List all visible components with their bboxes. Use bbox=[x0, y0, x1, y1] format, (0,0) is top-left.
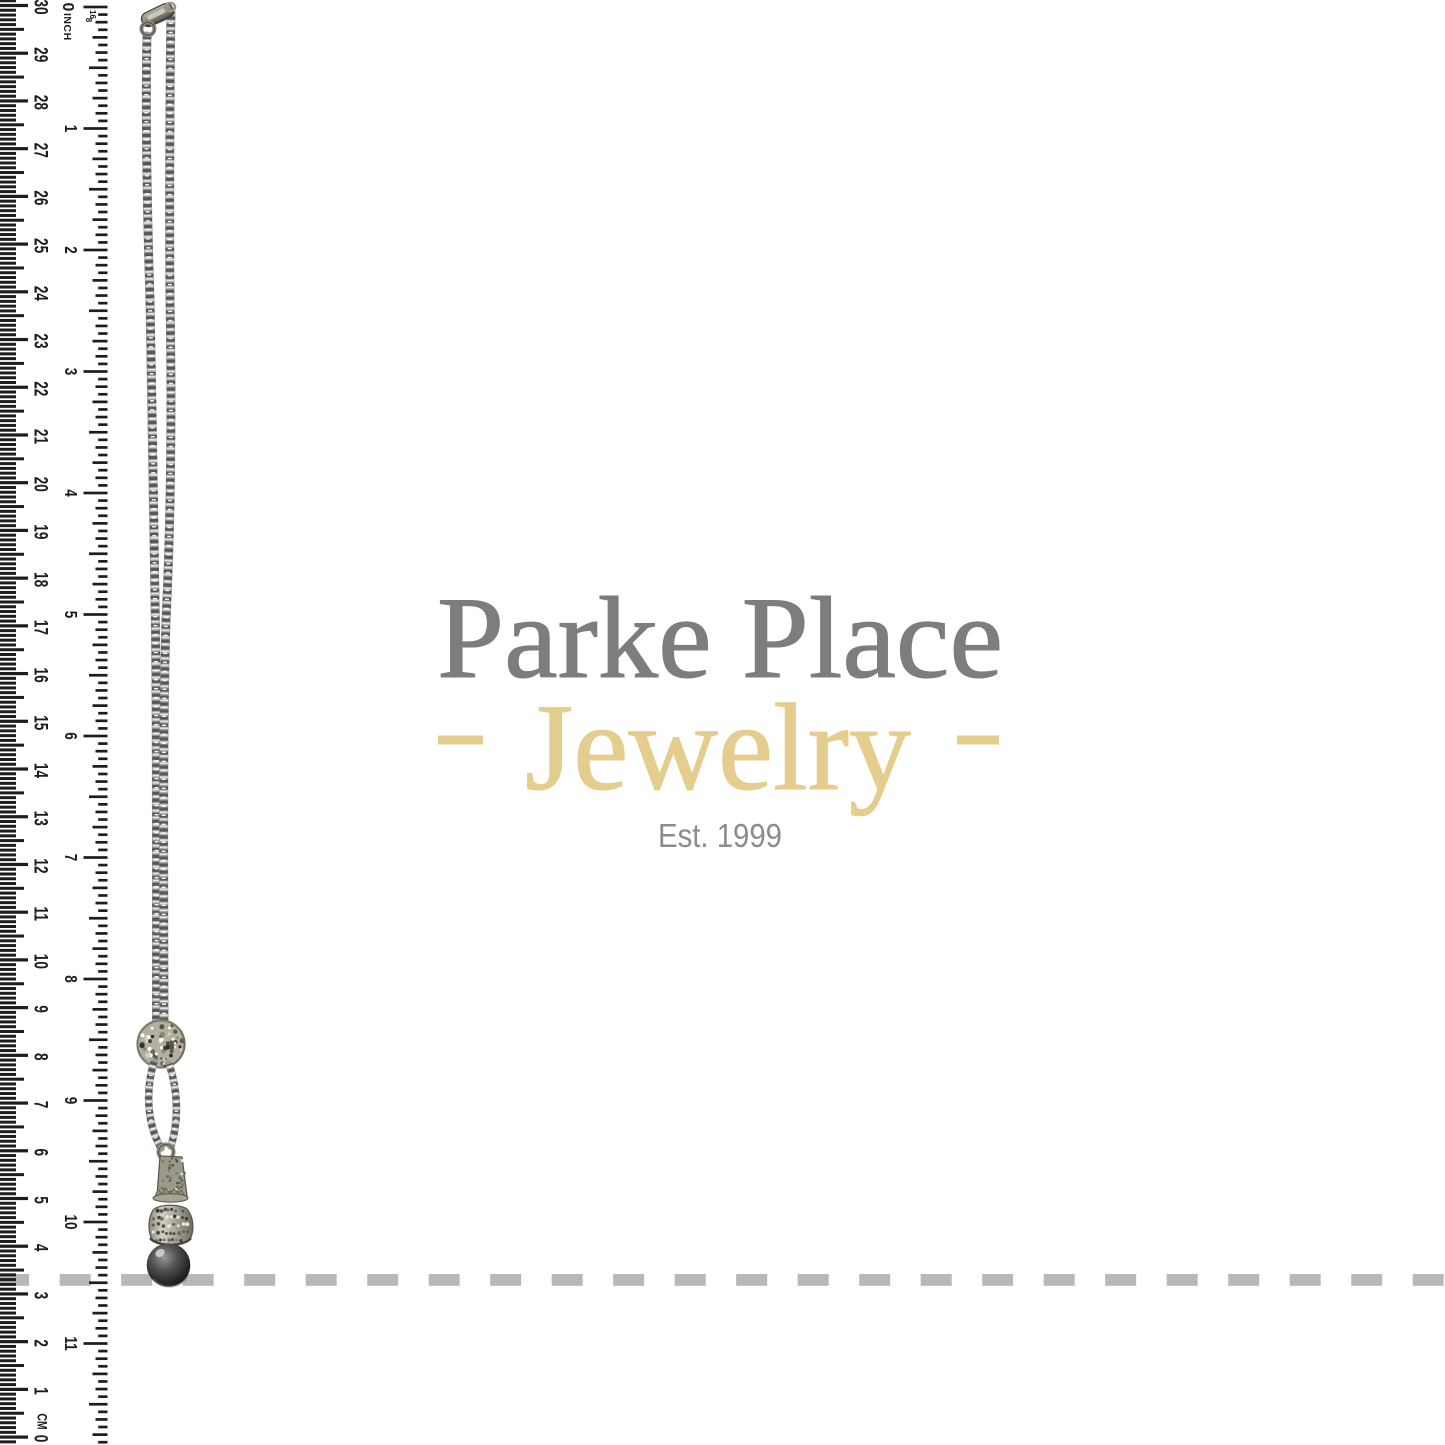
svg-text:22: 22 bbox=[30, 381, 52, 396]
svg-text:Jewelry: Jewelry bbox=[525, 679, 911, 816]
svg-text:4: 4 bbox=[60, 489, 79, 497]
svg-text:7: 7 bbox=[30, 1101, 52, 1109]
svg-text:10: 10 bbox=[30, 954, 52, 969]
svg-text:2: 2 bbox=[60, 246, 79, 254]
svg-text:17: 17 bbox=[30, 620, 52, 635]
svg-text:18: 18 bbox=[30, 572, 52, 587]
svg-text:5: 5 bbox=[60, 611, 79, 619]
svg-text:30: 30 bbox=[30, 0, 52, 15]
svg-text:19: 19 bbox=[30, 524, 52, 539]
svg-text:Est. 1999: Est. 1999 bbox=[658, 817, 782, 854]
svg-text:9: 9 bbox=[60, 1097, 79, 1105]
svg-text:7: 7 bbox=[60, 854, 79, 862]
svg-text:23: 23 bbox=[30, 333, 52, 348]
svg-text:1: 1 bbox=[60, 125, 79, 133]
svg-text:25: 25 bbox=[30, 238, 52, 253]
svg-text:28: 28 bbox=[30, 95, 52, 110]
svg-text:12: 12 bbox=[30, 858, 52, 873]
svg-text:14: 14 bbox=[30, 763, 52, 779]
svg-text:5: 5 bbox=[30, 1196, 52, 1204]
svg-text:8: 8 bbox=[60, 975, 79, 983]
svg-text:6: 6 bbox=[60, 732, 79, 740]
svg-text:16: 16 bbox=[30, 667, 52, 682]
svg-text:0: 0 bbox=[59, 3, 76, 12]
svg-text:10: 10 bbox=[60, 1214, 79, 1229]
svg-text:20: 20 bbox=[30, 477, 52, 492]
svg-text:27: 27 bbox=[30, 143, 52, 158]
svg-text:29: 29 bbox=[30, 47, 52, 62]
svg-text:3: 3 bbox=[60, 368, 79, 376]
svg-text:CM: CM bbox=[34, 1413, 50, 1429]
svg-text:15: 15 bbox=[30, 715, 52, 730]
svg-text:9: 9 bbox=[30, 1005, 52, 1013]
svg-text:13: 13 bbox=[30, 811, 52, 826]
svg-text:6: 6 bbox=[30, 1148, 52, 1156]
svg-text:2: 2 bbox=[30, 1339, 52, 1347]
svg-text:8: 8 bbox=[30, 1053, 52, 1061]
svg-text:0: 0 bbox=[30, 1435, 52, 1443]
svg-text:11: 11 bbox=[60, 1336, 79, 1350]
svg-text:24: 24 bbox=[30, 286, 52, 302]
svg-text:4: 4 bbox=[30, 1244, 52, 1252]
svg-text:3: 3 bbox=[30, 1292, 52, 1300]
svg-text:11: 11 bbox=[30, 906, 52, 920]
svg-text:26: 26 bbox=[30, 190, 52, 205]
svg-text:1: 1 bbox=[30, 1387, 52, 1395]
svg-text:8: 8 bbox=[84, 18, 93, 23]
svg-text:21: 21 bbox=[30, 429, 52, 444]
svg-text:INCH: INCH bbox=[61, 13, 73, 41]
